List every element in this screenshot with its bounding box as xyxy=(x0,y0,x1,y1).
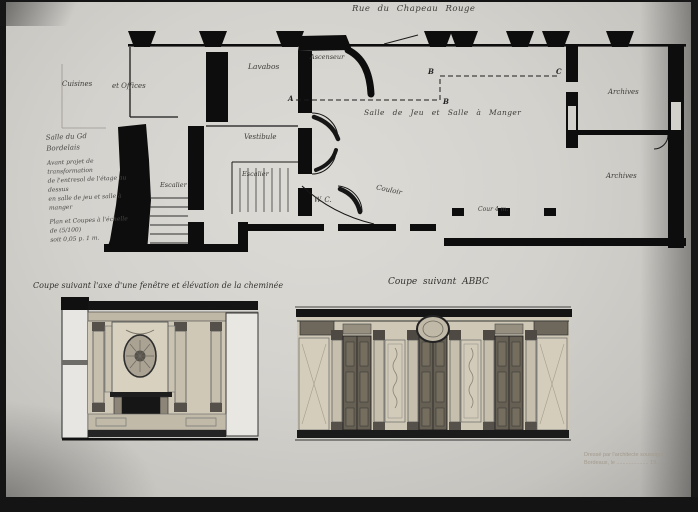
paneled-doors xyxy=(343,336,523,430)
trumeau-medallion xyxy=(112,322,168,396)
room-label-archives-bottom: Archives xyxy=(606,172,637,180)
oval-cartouche xyxy=(417,316,449,342)
central-wall xyxy=(298,51,312,216)
room-label-archives-top: Archives xyxy=(608,88,639,96)
drawing-canvas xyxy=(0,0,698,512)
section-marker-a: A xyxy=(288,94,293,103)
section-marker-b1: B xyxy=(443,97,449,106)
right-walls xyxy=(566,44,684,248)
right-elevation-drawing xyxy=(295,307,572,440)
floor-plan xyxy=(62,31,686,252)
stamp-line-2: Bordeaux, le ..................... 19.. xyxy=(584,459,665,467)
architect-stamp: Dressé par l'architecte soussigné Bordea… xyxy=(584,451,665,468)
room-label-ascenseur: Ascenseur xyxy=(310,53,344,61)
annotation-cour: Cour 4 m. xyxy=(478,206,508,213)
room-label-vestibule: Vestibule xyxy=(244,133,277,141)
street-name-label: Rue du Chapeau Rouge xyxy=(352,4,475,14)
room-label-escalier-service: Escalier xyxy=(160,181,187,189)
title-block: Salle du Gd Bordelais Avant projet de tr… xyxy=(46,129,131,244)
stamp-line-1: Dressé par l'architecte soussigné xyxy=(584,451,665,459)
left-elevation-drawing xyxy=(61,297,258,441)
section-marker-b2: B xyxy=(428,67,434,76)
section-line-abbc xyxy=(296,76,560,100)
title-block-line: en salle de jeu et salle à manger xyxy=(48,191,129,212)
service-stair-treads xyxy=(150,198,188,243)
right-section-title: Coupe suivant ABBC xyxy=(388,277,489,287)
room-label-lavabos: Lavabos xyxy=(248,62,279,71)
left-section-title: Coupe suivant l'axe d'une fenêtre et élé… xyxy=(33,281,283,290)
room-label-escalier-main: Escalier xyxy=(242,170,269,178)
scanned-architectural-drawing: Rue du Chapeau Rouge Salle du Gd Bordela… xyxy=(0,0,698,512)
door-swings xyxy=(302,113,374,224)
room-label-wc: W. C. xyxy=(314,196,332,204)
room-label-offices: et Offices xyxy=(112,82,146,90)
room-label-cuisines: Cuisines xyxy=(62,80,92,88)
section-marker-c: C xyxy=(556,67,562,76)
room-label-salle-de-jeu: Salle de Jeu et Salle à Manger xyxy=(364,108,521,117)
